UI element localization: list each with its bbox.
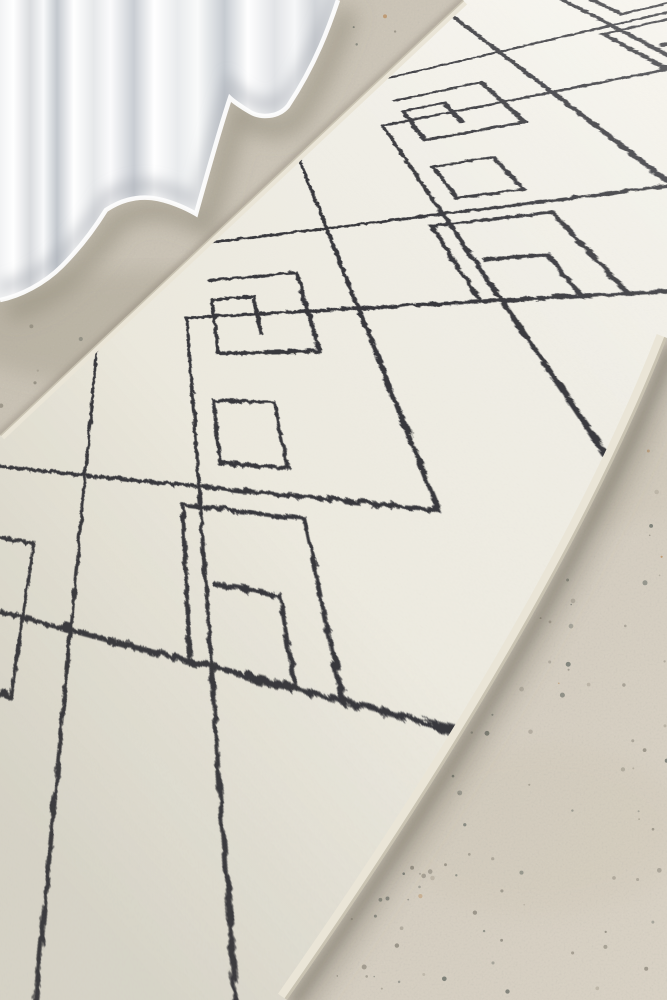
photo-scene <box>0 0 667 1000</box>
